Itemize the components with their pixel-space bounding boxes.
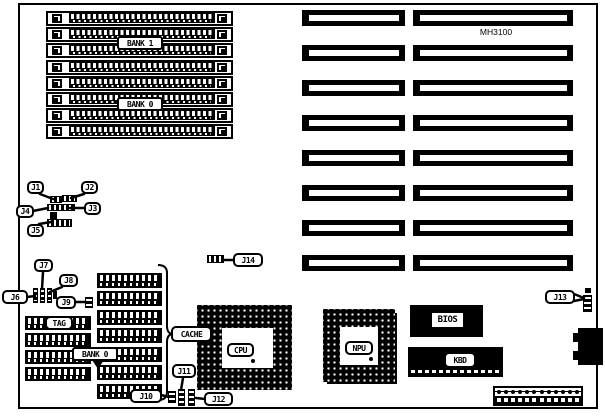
jumper-label-j11: J11 <box>172 364 196 378</box>
jumper-label-j3: J3 <box>84 202 101 215</box>
bios-label: BIOS <box>431 312 464 328</box>
tag-label: TAG <box>45 316 73 330</box>
jumper-label-j10: J10 <box>130 389 162 403</box>
kbd-label: KBD <box>444 352 476 368</box>
npu-label: NPU <box>345 341 373 355</box>
cache-brace <box>158 265 172 400</box>
jumper-label-j2: J2 <box>81 181 98 194</box>
jumper-label-j7: J7 <box>34 259 53 272</box>
motherboard-diagram: BANK 1 BANK 0 MH3100 J1 J2 J3 J4 J5 J6 J… <box>0 0 605 416</box>
jumper-label-j8: J8 <box>59 274 78 287</box>
jumper-label-j6: J6 <box>2 290 28 304</box>
jumper-label-j13: J13 <box>545 290 575 304</box>
jumper-label-j9: J9 <box>56 296 76 309</box>
jumper-label-j4: J4 <box>16 205 34 218</box>
jumper-label-j5: J5 <box>27 224 44 237</box>
bank1-label: BANK 1 <box>117 36 163 50</box>
jumper-label-j14: J14 <box>233 253 263 267</box>
bank0-dram-label: BANK 0 <box>72 347 118 361</box>
bank0-simm-label: BANK 0 <box>117 97 163 111</box>
cpu-label: CPU <box>227 343 254 357</box>
jumper-label-j12: J12 <box>204 392 233 406</box>
bank0-arrow <box>92 360 104 369</box>
jumper-label-j1: J1 <box>27 181 44 194</box>
cache-label: CACHE <box>171 326 212 342</box>
